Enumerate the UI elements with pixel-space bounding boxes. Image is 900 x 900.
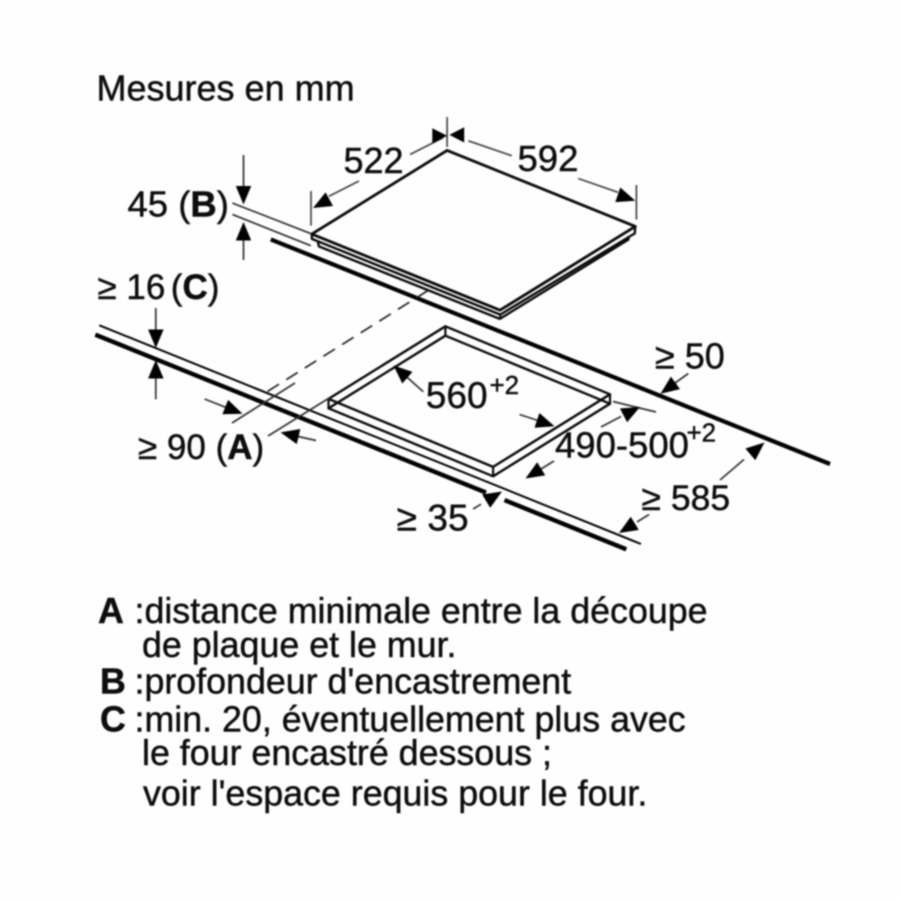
- svg-text:≥ 16: ≥ 16: [98, 268, 166, 307]
- svg-text:de plaque et le mur.: de plaque et le mur.: [142, 625, 456, 665]
- svg-text:≥ 585: ≥ 585: [642, 478, 731, 518]
- svg-text:≥ 50: ≥ 50: [655, 336, 725, 377]
- svg-text:C: C: [100, 700, 126, 740]
- svg-text::profondeur d'encastrement: :profondeur d'encastrement: [135, 662, 572, 702]
- svg-text:592: 592: [518, 138, 579, 179]
- svg-text:A: A: [98, 591, 124, 631]
- svg-text:522: 522: [344, 140, 404, 181]
- svg-text:(C): (C): [171, 268, 220, 307]
- svg-text:490-500: 490-500: [555, 425, 689, 466]
- svg-text:≥ 90 (A): ≥ 90 (A): [138, 428, 264, 467]
- svg-text:Mesures en mm: Mesures en mm: [97, 67, 355, 108]
- svg-text:voir l'espace requis pour le f: voir l'espace requis pour le four.: [143, 774, 647, 814]
- svg-text:+2: +2: [490, 370, 520, 400]
- svg-text:B: B: [100, 662, 126, 702]
- svg-text:45 (B): 45 (B): [128, 184, 229, 225]
- svg-text:560: 560: [426, 375, 488, 416]
- svg-text:+2: +2: [687, 418, 717, 448]
- svg-text:le four encastré dessous ;: le four encastré dessous ;: [142, 733, 552, 773]
- svg-text:≥ 35: ≥ 35: [397, 498, 469, 539]
